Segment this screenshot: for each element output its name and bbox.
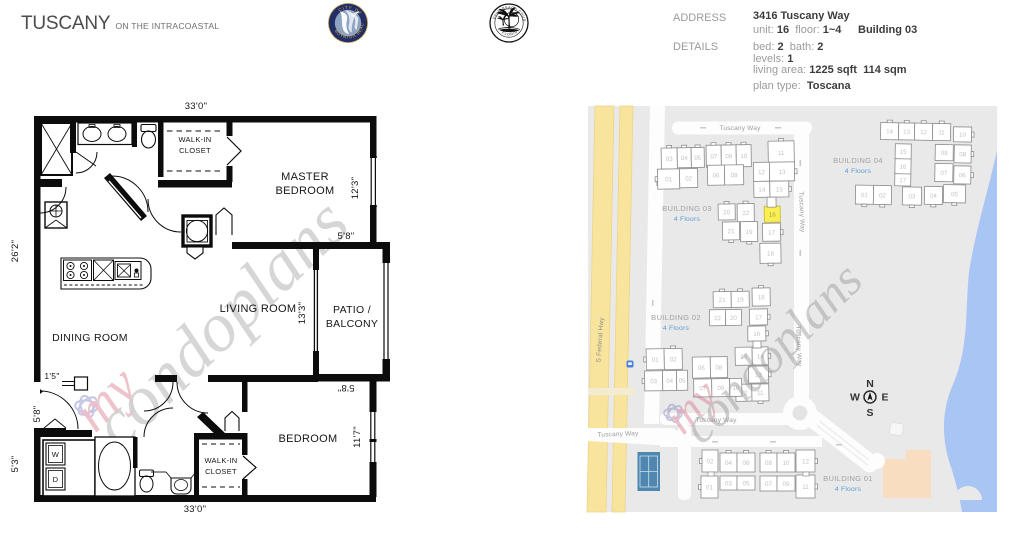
svg-text:4 Floors: 4 Floors xyxy=(674,216,701,223)
svg-text:07: 07 xyxy=(940,170,948,177)
svg-text:03: 03 xyxy=(908,193,916,200)
svg-text:11: 11 xyxy=(938,129,945,136)
svg-text:Tuscany Way: Tuscany Way xyxy=(719,125,761,132)
svg-text:04: 04 xyxy=(681,155,689,162)
svg-text:02: 02 xyxy=(685,175,693,182)
svg-text:4 Floors: 4 Floors xyxy=(845,168,872,175)
svg-text:08: 08 xyxy=(731,172,739,179)
svg-text:19: 19 xyxy=(737,297,745,304)
svg-text:01: 01 xyxy=(861,192,869,199)
svg-text:4 Floors: 4 Floors xyxy=(663,325,690,332)
svg-text:20: 20 xyxy=(723,209,731,216)
svg-text:02: 02 xyxy=(879,192,887,199)
svg-text:16: 16 xyxy=(769,212,777,219)
svg-text:18: 18 xyxy=(767,251,775,258)
svg-text:22: 22 xyxy=(742,210,750,217)
svg-text:05: 05 xyxy=(743,480,750,487)
svg-text:10: 10 xyxy=(959,132,967,139)
svg-text:BUILDING 02: BUILDING 02 xyxy=(651,313,701,322)
svg-text:08: 08 xyxy=(765,460,772,467)
svg-text:BUILDING 01: BUILDING 01 xyxy=(823,474,873,483)
svg-text:01: 01 xyxy=(665,176,673,183)
svg-text:17: 17 xyxy=(899,177,907,184)
svg-text:12: 12 xyxy=(920,129,928,136)
svg-text:02: 02 xyxy=(707,458,714,465)
svg-text:Tuscany Way: Tuscany Way xyxy=(597,430,639,438)
svg-text:03: 03 xyxy=(725,480,732,487)
svg-text:09: 09 xyxy=(783,481,790,488)
svg-text:13: 13 xyxy=(779,169,787,176)
svg-text:14: 14 xyxy=(758,187,766,194)
svg-text:12: 12 xyxy=(802,458,809,465)
svg-text:02: 02 xyxy=(670,356,678,363)
svg-text:08: 08 xyxy=(959,151,967,158)
svg-text:03: 03 xyxy=(650,378,658,385)
svg-text:BUILDING 03: BUILDING 03 xyxy=(662,204,712,213)
svg-text:21: 21 xyxy=(719,297,727,304)
svg-text:15: 15 xyxy=(900,149,908,156)
svg-text:01: 01 xyxy=(652,357,660,364)
svg-text:E: E xyxy=(881,392,888,404)
svg-text:06: 06 xyxy=(959,172,967,179)
svg-text:14: 14 xyxy=(886,128,894,135)
svg-text:19: 19 xyxy=(746,229,754,236)
svg-text:04: 04 xyxy=(725,460,732,467)
svg-text:Tuscany Way: Tuscany Way xyxy=(797,191,805,233)
svg-text:17: 17 xyxy=(768,230,776,237)
svg-text:06: 06 xyxy=(713,172,721,179)
svg-text:16: 16 xyxy=(899,164,907,171)
svg-text:11: 11 xyxy=(802,484,809,491)
svg-text:09: 09 xyxy=(941,150,949,157)
svg-text:04: 04 xyxy=(666,378,674,385)
svg-text:10: 10 xyxy=(740,153,748,160)
svg-text:01: 01 xyxy=(706,484,713,491)
svg-text:10: 10 xyxy=(783,460,790,467)
svg-text:03: 03 xyxy=(666,156,674,163)
svg-text:22: 22 xyxy=(714,315,722,322)
svg-text:BUILDING 04: BUILDING 04 xyxy=(833,156,883,165)
svg-text:07: 07 xyxy=(765,481,772,488)
svg-text:17: 17 xyxy=(755,314,763,321)
svg-text:20: 20 xyxy=(730,315,738,322)
svg-text:12: 12 xyxy=(758,169,766,176)
svg-text:13: 13 xyxy=(903,129,911,136)
svg-text:07: 07 xyxy=(710,154,718,161)
svg-text:04: 04 xyxy=(930,193,938,200)
svg-text:15: 15 xyxy=(776,186,784,193)
svg-text:4 Floors: 4 Floors xyxy=(835,486,862,493)
svg-text:09: 09 xyxy=(725,153,733,160)
svg-text:06: 06 xyxy=(743,460,750,467)
svg-text:18: 18 xyxy=(758,294,766,301)
svg-text:S: S xyxy=(866,407,873,419)
svg-text:05: 05 xyxy=(951,191,959,198)
svg-text:06: 06 xyxy=(698,365,706,372)
svg-text:21: 21 xyxy=(728,228,736,235)
svg-text:11: 11 xyxy=(778,150,785,157)
svg-text:N: N xyxy=(866,378,874,390)
svg-text:05: 05 xyxy=(694,155,702,162)
svg-text:W: W xyxy=(850,392,860,404)
